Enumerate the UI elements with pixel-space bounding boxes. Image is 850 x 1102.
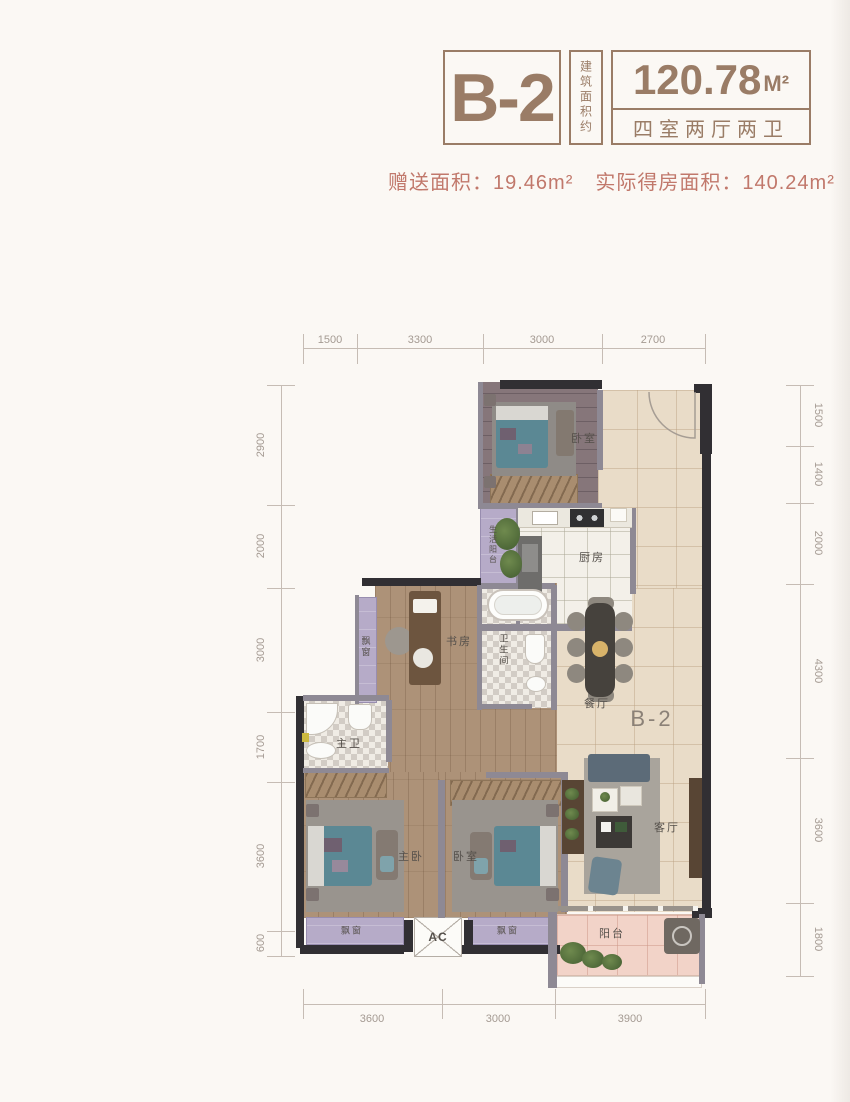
wall-segment bbox=[702, 452, 711, 914]
rooms-desc: 四室两厅两卫 bbox=[613, 108, 809, 145]
dim-left-6: 600 bbox=[255, 934, 267, 952]
dining-chair bbox=[567, 664, 586, 683]
wall-segment bbox=[700, 390, 712, 454]
dim-right-5: 3600 bbox=[812, 818, 824, 842]
dining-chair bbox=[567, 638, 586, 657]
dim-left-1: 2900 bbox=[255, 433, 267, 457]
bonus-area-line: 赠送面积：19.46m²实际得房面积：140.24m² bbox=[388, 166, 835, 195]
wall-segment bbox=[438, 780, 445, 918]
dim-line-left bbox=[281, 385, 282, 956]
wall-segment bbox=[300, 945, 404, 954]
bed-throw bbox=[518, 444, 532, 454]
dim-line-top bbox=[303, 348, 705, 349]
floorplan-page: B-2 建筑面积约 120.78 M² 四室两厅两卫 赠送面积：19.46m²实… bbox=[0, 0, 850, 1102]
tv-cabinet bbox=[689, 778, 702, 878]
dim-left-3: 3000 bbox=[255, 638, 267, 662]
dim-tick bbox=[267, 588, 295, 589]
wall-segment bbox=[404, 920, 413, 952]
dim-right-1: 1500 bbox=[812, 403, 824, 427]
dim-right-4: 4300 bbox=[812, 659, 824, 683]
bed-throw bbox=[500, 428, 516, 440]
wall-segment bbox=[355, 595, 359, 705]
label-dining: 餐厅 bbox=[584, 695, 610, 711]
dim-line-bottom bbox=[303, 1004, 705, 1005]
dim-top-2: 3300 bbox=[408, 334, 432, 346]
kitchen-sink bbox=[532, 511, 558, 525]
dim-bottom-1: 3600 bbox=[360, 1013, 384, 1025]
dim-tick bbox=[267, 385, 295, 386]
toilet-icon bbox=[525, 634, 545, 664]
wall-segment bbox=[386, 700, 392, 762]
balcony-ledge bbox=[556, 976, 702, 988]
label-kitchen: 厨房 bbox=[579, 549, 605, 565]
dim-tick bbox=[786, 446, 814, 447]
dim-left-5: 3600 bbox=[255, 844, 267, 868]
plant-icon bbox=[565, 788, 579, 800]
dim-tick bbox=[602, 334, 603, 364]
nightstand bbox=[484, 476, 496, 488]
washer-drum bbox=[672, 926, 692, 946]
label-living-room: 客厅 bbox=[654, 819, 680, 835]
dim-tick bbox=[705, 989, 706, 1019]
dim-tick bbox=[483, 334, 484, 364]
dim-tick bbox=[555, 989, 556, 1019]
dim-right-3: 2000 bbox=[812, 531, 824, 555]
balcony-sliding-door bbox=[558, 906, 698, 911]
dim-left-2: 2000 bbox=[255, 534, 267, 558]
dim-tick bbox=[303, 334, 304, 364]
bathtub-basin bbox=[494, 595, 542, 615]
area-value-row: 120.78 M² bbox=[613, 52, 809, 108]
label-study: 书房 bbox=[446, 633, 472, 649]
label-bay-window-master: 飘窗 bbox=[341, 924, 363, 937]
dim-tick bbox=[267, 712, 295, 713]
plant-icon bbox=[600, 792, 610, 802]
dim-tick bbox=[786, 584, 814, 585]
label-bay-window-second: 飘窗 bbox=[497, 924, 519, 937]
bed-throw bbox=[500, 840, 516, 852]
wall-segment bbox=[480, 704, 532, 709]
fridge-door bbox=[522, 544, 538, 572]
console-detail bbox=[615, 822, 627, 832]
area-note: 建筑面积约 bbox=[578, 60, 595, 135]
wall-segment bbox=[464, 920, 473, 952]
gift-label: 赠送面积： bbox=[388, 172, 493, 194]
sink-icon bbox=[526, 676, 546, 692]
wall-segment bbox=[303, 695, 389, 701]
wall-segment bbox=[362, 578, 481, 586]
dim-tick bbox=[357, 334, 358, 364]
plant-icon bbox=[500, 550, 522, 578]
dim-tick bbox=[303, 989, 304, 1019]
bed-throw bbox=[324, 838, 342, 852]
side-table bbox=[620, 786, 642, 806]
plant-icon bbox=[565, 808, 579, 820]
dim-right-6: 1800 bbox=[812, 927, 824, 951]
sofa-icon bbox=[588, 754, 650, 782]
sink-icon bbox=[306, 742, 336, 759]
label-balcony: 阳台 bbox=[599, 925, 625, 941]
console-detail bbox=[601, 822, 611, 832]
wall-segment bbox=[548, 906, 557, 988]
wall-segment bbox=[597, 390, 603, 470]
nightstand bbox=[484, 394, 496, 406]
bed-throw bbox=[332, 860, 348, 872]
dim-top-1: 1500 bbox=[318, 334, 342, 346]
dim-tick bbox=[786, 758, 814, 759]
dim-tick bbox=[786, 903, 814, 904]
plan-watermark: B-2 bbox=[630, 706, 673, 732]
gift-value: 19.46m² bbox=[493, 172, 573, 194]
wall-segment bbox=[462, 945, 560, 954]
dim-tick bbox=[442, 989, 443, 1019]
label-ac: AC bbox=[428, 930, 447, 944]
label-master-bedroom: 主卧 bbox=[398, 848, 424, 864]
bench-towel bbox=[380, 856, 394, 872]
bench bbox=[376, 830, 398, 880]
plant-icon bbox=[582, 950, 604, 968]
dim-tick bbox=[267, 956, 295, 957]
wall-segment bbox=[303, 768, 389, 773]
plant-icon bbox=[602, 954, 622, 970]
dim-tick bbox=[786, 503, 814, 504]
nightstand bbox=[306, 888, 319, 901]
area-note-box: 建筑面积约 bbox=[569, 50, 603, 145]
toilet-icon bbox=[348, 704, 372, 730]
dining-chair bbox=[614, 664, 633, 683]
dim-tick bbox=[786, 385, 814, 386]
dim-bottom-3: 3900 bbox=[618, 1013, 642, 1025]
bed-pillows bbox=[540, 826, 556, 886]
label-bay-window-study: 飘窗 bbox=[360, 636, 373, 658]
dining-chair bbox=[614, 638, 633, 657]
dim-line-right bbox=[800, 385, 801, 976]
desk-lamp bbox=[413, 648, 433, 668]
bath-accessory bbox=[302, 733, 309, 742]
dining-chair bbox=[567, 612, 586, 631]
wall-segment bbox=[478, 382, 483, 506]
unit-code: B-2 bbox=[450, 59, 554, 137]
dim-tick bbox=[786, 976, 814, 977]
kitchen-cabinet bbox=[610, 508, 627, 522]
label-service-balcony: 生活阳台 bbox=[488, 525, 499, 565]
actual-value: 140.24m² bbox=[742, 172, 835, 194]
label-second-bedroom: 卧室 bbox=[453, 848, 479, 864]
media-console bbox=[596, 816, 632, 848]
plant-icon bbox=[565, 828, 579, 840]
stove-icon bbox=[570, 509, 604, 527]
dim-tick bbox=[705, 334, 706, 364]
area-box: 120.78 M² 四室两厅两卫 bbox=[611, 50, 811, 145]
dining-chair bbox=[614, 612, 633, 631]
bed-pillows bbox=[496, 406, 548, 420]
wall-segment bbox=[551, 585, 557, 710]
wall-segment bbox=[477, 585, 482, 710]
wardrobe-master bbox=[305, 772, 387, 798]
wall-segment bbox=[486, 772, 567, 778]
nightstand bbox=[546, 888, 559, 901]
dim-tick bbox=[267, 505, 295, 506]
nightstand bbox=[306, 804, 319, 817]
label-master-bath: 主卫 bbox=[336, 735, 362, 751]
actual-label: 实际得房面积： bbox=[595, 172, 742, 194]
dim-bottom-2: 3000 bbox=[486, 1013, 510, 1025]
area-unit: M² bbox=[763, 71, 789, 97]
dim-tick bbox=[267, 931, 295, 932]
area-value: 120.78 bbox=[633, 56, 761, 104]
unit-code-box: B-2 bbox=[443, 50, 561, 145]
dim-top-4: 2700 bbox=[641, 334, 665, 346]
label-bedroom-top: 卧室 bbox=[571, 430, 597, 446]
bed-pillows bbox=[308, 826, 324, 886]
dim-left-4: 1700 bbox=[255, 735, 267, 759]
wardrobe-top-bedroom bbox=[490, 474, 578, 504]
table-plate bbox=[592, 641, 608, 657]
wall-segment bbox=[500, 380, 602, 389]
dim-tick bbox=[267, 782, 295, 783]
nightstand bbox=[546, 804, 559, 817]
dim-top-3: 3000 bbox=[530, 334, 554, 346]
armchair-icon bbox=[588, 856, 623, 896]
label-bathroom: 卫生间 bbox=[498, 634, 511, 667]
dim-right-2: 1400 bbox=[812, 462, 824, 486]
entry-door-swing-icon bbox=[646, 388, 698, 440]
desk-papers bbox=[413, 599, 437, 613]
